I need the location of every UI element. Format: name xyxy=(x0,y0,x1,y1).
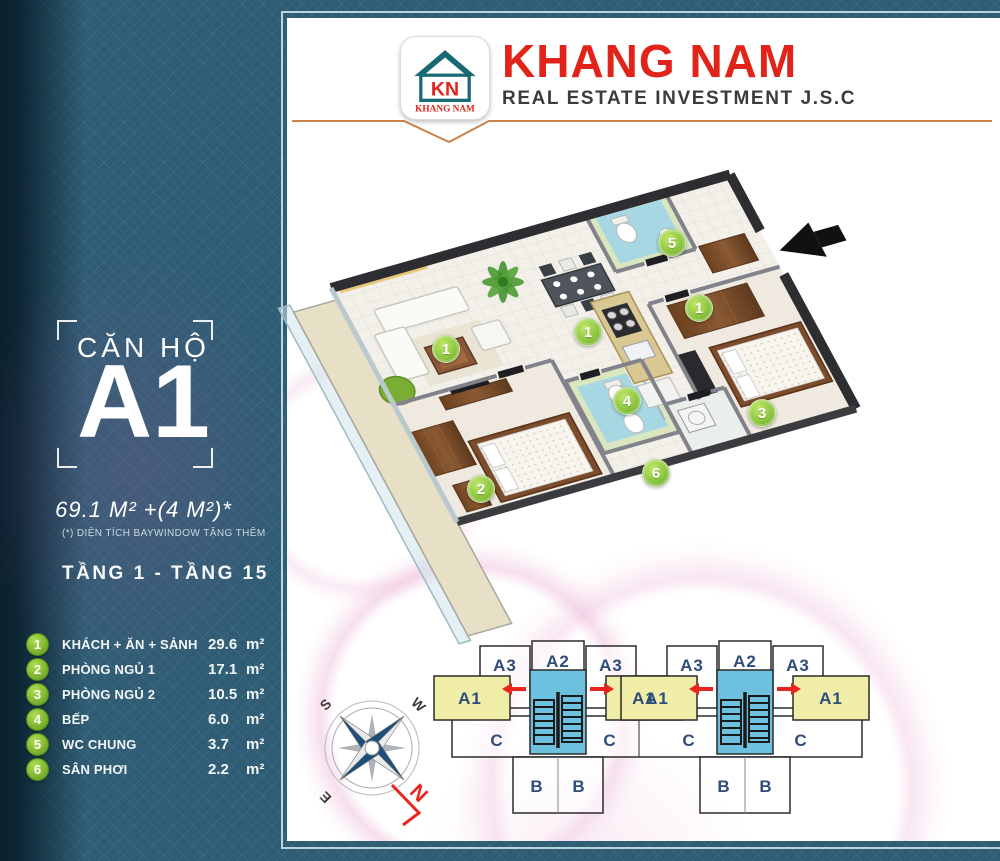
legend-num-badge: 1 xyxy=(26,633,49,656)
house-logo-icon: KN KHANG NAM xyxy=(405,41,485,115)
legend-num-badge: 5 xyxy=(26,733,49,756)
legend-num-badge: 6 xyxy=(26,758,49,781)
marker-number: 2 xyxy=(477,481,485,498)
room-marker-bedroom-1: 2 xyxy=(467,475,495,503)
legend-num-badge: 4 xyxy=(26,708,49,731)
legend-room-label: KHÁCH + ĂN + SẢNH xyxy=(62,637,208,652)
panel-frame-line xyxy=(281,11,1000,849)
marker-number: 1 xyxy=(442,341,450,358)
room-marker-living-dining: 1 xyxy=(574,318,602,346)
legend-area-unit: m² xyxy=(246,736,272,753)
legend-room-label: PHÒNG NGỦ 1 xyxy=(62,662,208,677)
room-marker-san-phoi: 6 xyxy=(642,459,670,487)
legend-room-label: WC CHUNG xyxy=(62,737,208,752)
room-marker-living-coffee: 1 xyxy=(432,335,460,363)
legend-area-unit: m² xyxy=(246,711,272,728)
legend-room-area: 2.2 xyxy=(208,761,246,778)
brand-name: KHANG NAM xyxy=(502,38,856,84)
legend-room-area: 17.1 xyxy=(208,661,246,678)
legend-row: 1 KHÁCH + ĂN + SẢNH 29.6 m² xyxy=(26,634,272,655)
marker-number: 6 xyxy=(652,465,660,482)
legend-row: 4 BẾP 6.0 m² xyxy=(26,709,272,730)
legend-room-label: PHÒNG NGỦ 2 xyxy=(62,687,208,702)
legend-num-badge: 2 xyxy=(26,658,49,681)
room-marker-living-hall: 1 xyxy=(685,294,713,322)
floors-range: TẦNG 1 - TẦNG 15 xyxy=(62,563,269,585)
unit-code: A1 xyxy=(0,348,287,457)
legend-row: 2 PHÒNG NGỦ 1 17.1 m² xyxy=(26,659,272,680)
marker-number: 1 xyxy=(584,324,592,341)
unit-area: 69.1 M² +(4 M²)* xyxy=(0,497,287,523)
legend-room-label: SÂN PHƠI xyxy=(62,762,208,777)
legend-row: 6 SÂN PHƠI 2.2 m² xyxy=(26,759,272,780)
legend-row: 3 PHÒNG NGỦ 2 10.5 m² xyxy=(26,684,272,705)
logo-label: KHANG NAM xyxy=(415,104,475,114)
area-footnote: (*) DIỆN TÍCH BAYWINDOW TẶNG THÊM xyxy=(62,528,266,539)
legend-room-area: 6.0 xyxy=(208,711,246,728)
room-marker-kitchen: 4 xyxy=(613,387,641,415)
legend-area-unit: m² xyxy=(246,661,272,678)
legend-area-unit: m² xyxy=(246,761,272,778)
brand-subtitle: REAL ESTATE INVESTMENT J.S.C xyxy=(502,88,856,110)
marker-number: 4 xyxy=(623,393,631,410)
marker-number: 1 xyxy=(695,300,703,317)
legend-area-unit: m² xyxy=(246,636,272,653)
legend-num-badge: 3 xyxy=(26,683,49,706)
legend-area-unit: m² xyxy=(246,686,272,703)
legend-row: 5 WC CHUNG 3.7 m² xyxy=(26,734,272,755)
legend-room-label: BẾP xyxy=(62,712,208,727)
marker-number: 3 xyxy=(758,405,766,422)
marker-number: 5 xyxy=(668,235,676,252)
logo-monogram: KN xyxy=(431,79,459,101)
room-marker-wc: 5 xyxy=(658,229,686,257)
khang-nam-logo: KN KHANG NAM xyxy=(400,36,490,120)
legend-room-area: 10.5 xyxy=(208,686,246,703)
header: KN KHANG NAM KHANG NAM REAL ESTATE INVES… xyxy=(400,36,856,120)
legend-room-area: 3.7 xyxy=(208,736,246,753)
room-marker-bedroom-2: 3 xyxy=(748,399,776,427)
room-legend: 1 KHÁCH + ĂN + SẢNH 29.6 m² 2 PHÒNG NGỦ … xyxy=(26,634,272,784)
legend-room-area: 29.6 xyxy=(208,636,246,653)
